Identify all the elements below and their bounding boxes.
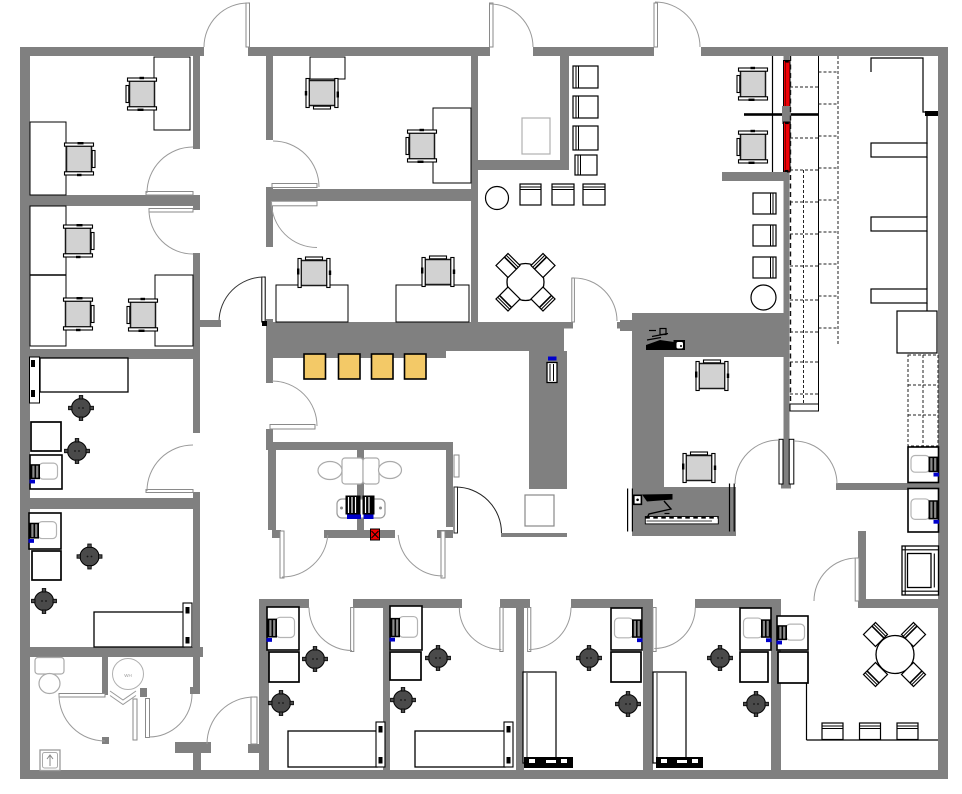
svg-text:WH: WH (124, 673, 132, 678)
